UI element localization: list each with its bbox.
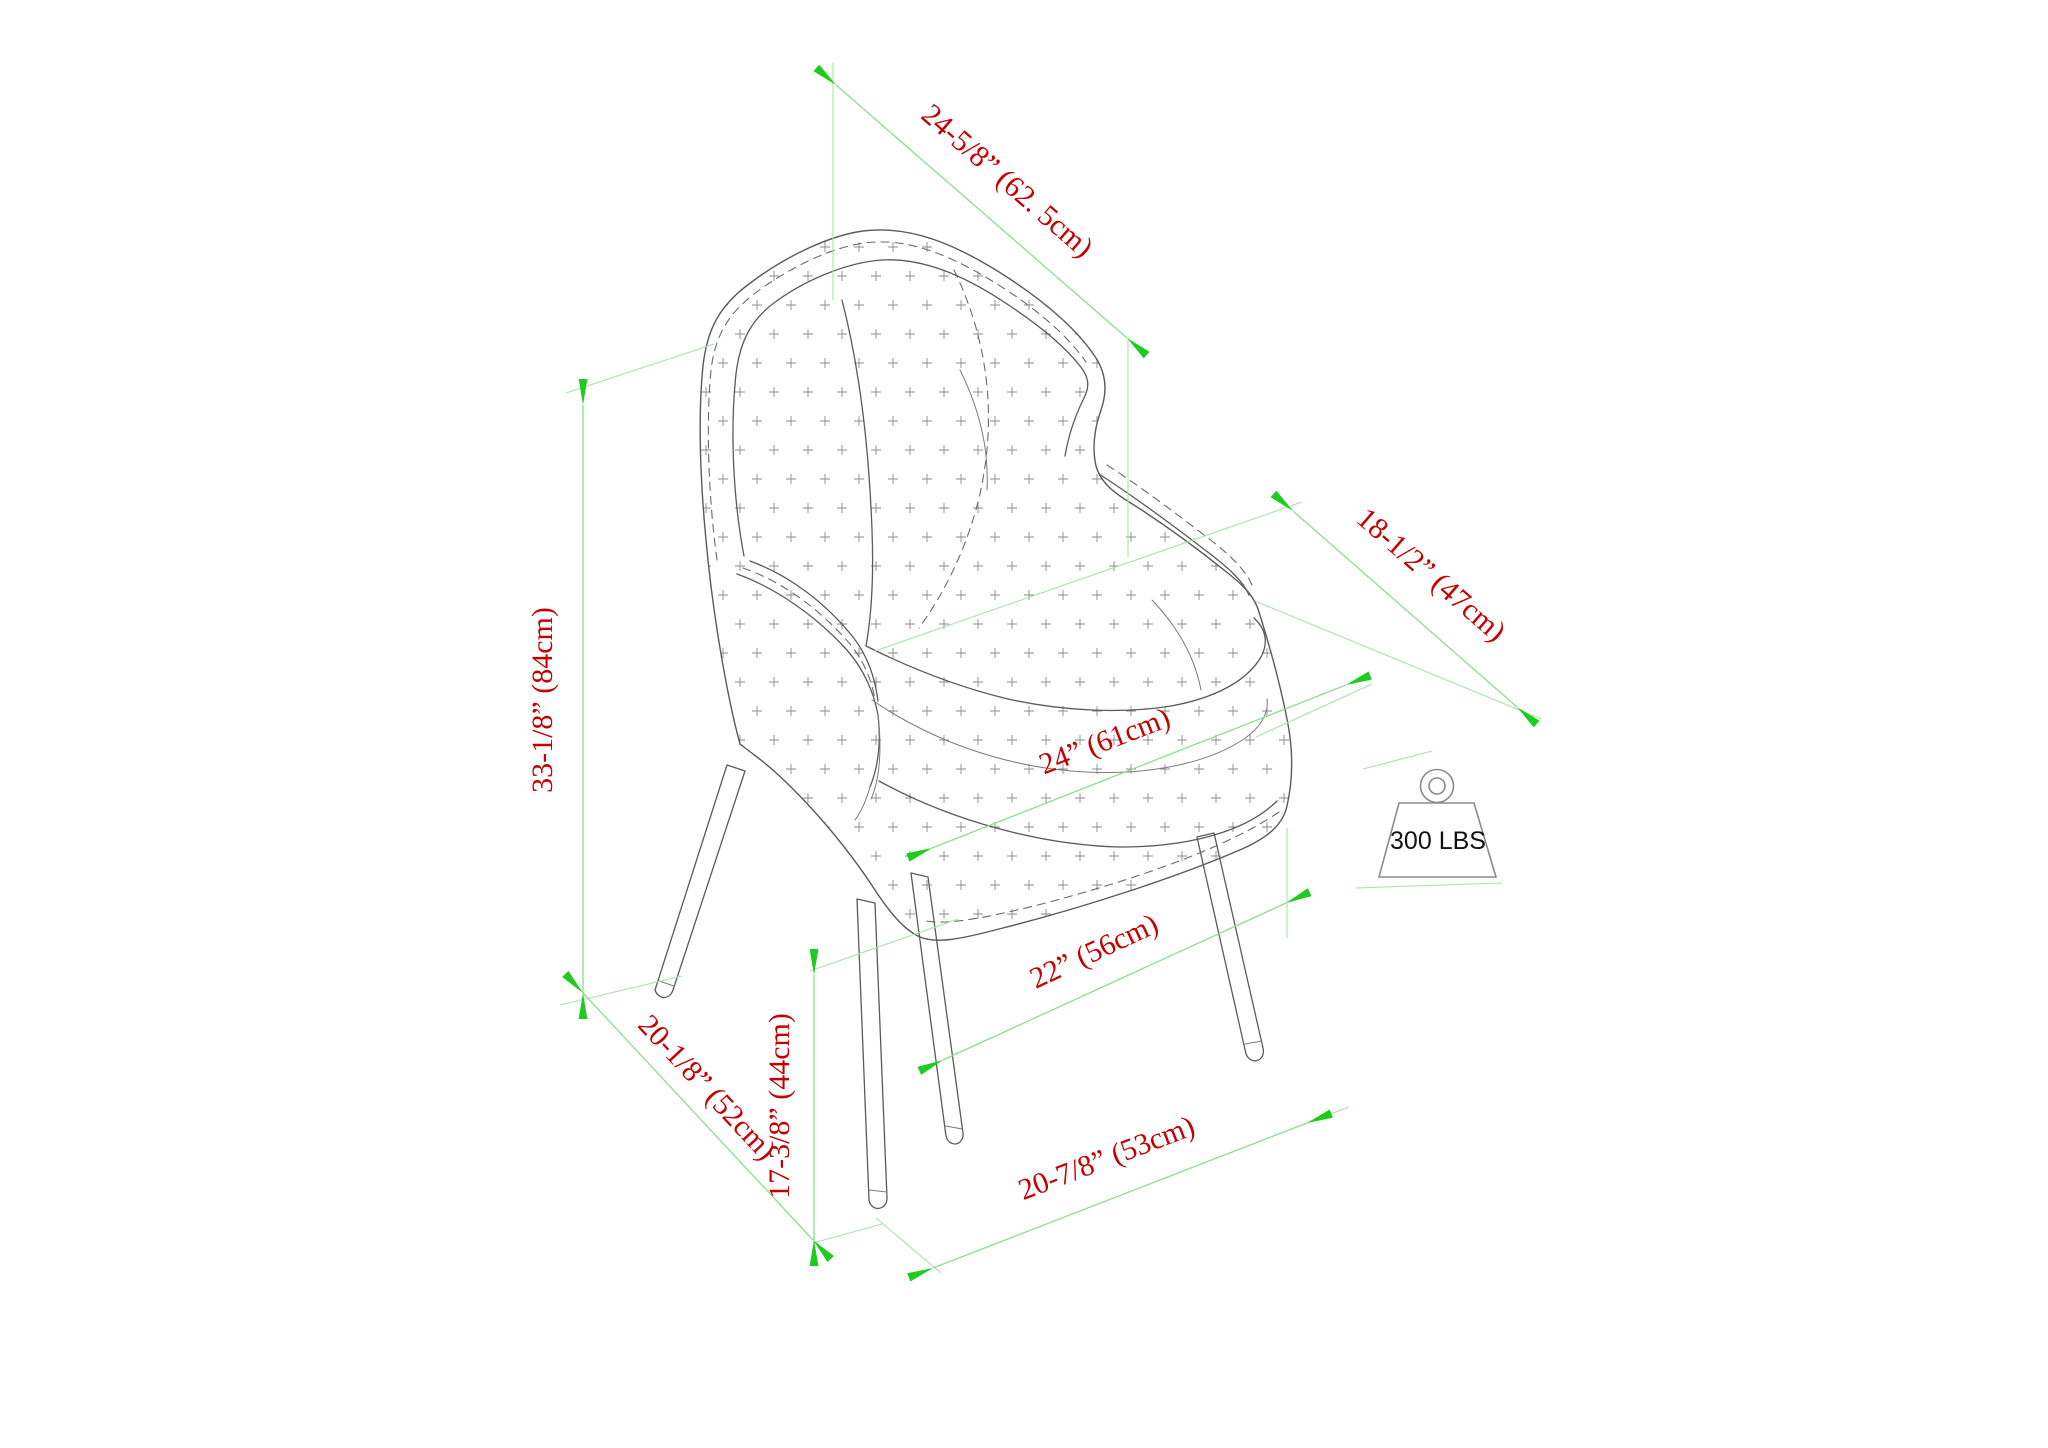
weight-capacity-icon: 300 LBS xyxy=(1379,770,1496,878)
chair-drawing xyxy=(655,230,1292,1209)
dimension-seat-height: 17-3/8” (44cm) xyxy=(763,975,814,1240)
dimension-label: 24-5/8” (62. 5cm) xyxy=(915,98,1100,264)
extension-line xyxy=(813,1224,882,1243)
dimension-overall-height: 33-1/8” (84cm) xyxy=(526,405,583,993)
dimension-front-leg-span: 20-7/8” (53cm) xyxy=(933,1109,1307,1268)
dimension-label: 20-7/8” (53cm) xyxy=(1014,1109,1199,1206)
weight-ring-inner xyxy=(1429,778,1445,794)
chair-upholstered-body xyxy=(700,230,1292,940)
dimension-label: 20-1/8” (52cm) xyxy=(632,1008,783,1166)
front-right-leg xyxy=(1197,833,1263,1061)
dimension-label: 17-3/8” (44cm) xyxy=(763,1013,796,1199)
extension-line xyxy=(1307,1107,1349,1123)
diagram-stage: 24-5/8” (62. 5cm) 33-1/8” (84cm) 18-1/2”… xyxy=(0,0,2048,1448)
back-left-leg xyxy=(655,765,745,998)
dimension-label: 33-1/8” (84cm) xyxy=(526,607,559,793)
dimension-label: 22” (56cm) xyxy=(1025,907,1164,995)
dimension-diagram-canvas: 24-5/8” (62. 5cm) 33-1/8” (84cm) 18-1/2”… xyxy=(0,0,2048,1448)
dimension-label: 18-1/2” (47cm) xyxy=(1350,501,1512,648)
weight-capacity-label: 300 LBS xyxy=(1390,827,1486,855)
extension-line xyxy=(876,1218,941,1273)
extension-line xyxy=(1363,751,1432,769)
dimension-arm-depth: 18-1/2” (47cm) xyxy=(1293,501,1517,707)
extension-line xyxy=(566,344,714,393)
extension-line xyxy=(1356,883,1502,888)
